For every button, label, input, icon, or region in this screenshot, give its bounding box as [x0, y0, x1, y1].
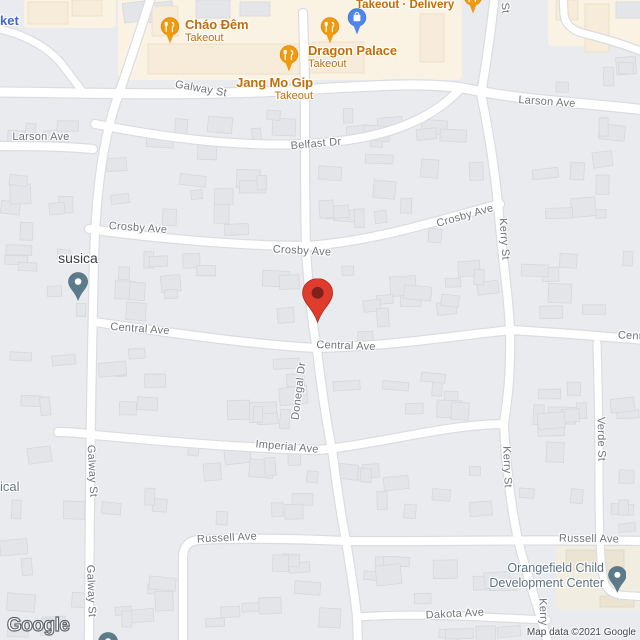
building: [273, 358, 300, 369]
building: [8, 130, 26, 142]
commercial-building: [28, 2, 68, 24]
place-pin-icon: [98, 632, 118, 640]
building: [279, 409, 290, 429]
building: [259, 597, 282, 614]
building: [27, 446, 52, 464]
building: [319, 608, 341, 628]
building: [354, 209, 364, 228]
building: [111, 193, 130, 204]
place-pin-icon: [68, 272, 88, 301]
susica-marker[interactable]: [68, 272, 88, 306]
building: [122, 611, 132, 627]
building: [610, 397, 635, 413]
building: [469, 501, 492, 517]
building: [0, 539, 28, 556]
building: [57, 121, 78, 132]
building: [106, 157, 127, 171]
building: [618, 500, 628, 515]
road-casing: [0, 28, 82, 91]
commercial-building: [585, 4, 609, 52]
building: [285, 504, 304, 519]
building: [539, 389, 561, 399]
building: [374, 210, 387, 223]
building: [376, 308, 389, 327]
building: [119, 402, 136, 415]
chao-dem-marker[interactable]: [160, 17, 180, 50]
building: [582, 305, 605, 314]
map-canvas[interactable]: Galway StLarson AveLarson AveBelfast DrC…: [0, 0, 640, 640]
building: [266, 110, 280, 121]
building: [623, 251, 634, 266]
dragon-palace-label[interactable]: Dragon PalaceTakeout: [308, 44, 397, 70]
building: [358, 331, 373, 341]
building: [118, 267, 129, 280]
building: [145, 374, 166, 388]
building: [469, 162, 483, 181]
building: [373, 180, 397, 199]
orangefield-center-label[interactable]: Orangefield ChildDevelopment Center: [489, 561, 604, 590]
takeout-delivery-label[interactable]: Takeout · Delivery: [356, 0, 454, 11]
restaurant-partial-top-marker[interactable]: [463, 0, 483, 19]
building: [6, 245, 32, 256]
building: [272, 118, 296, 136]
road: [0, 146, 93, 149]
building: [595, 209, 606, 218]
place-pin-icon: [608, 566, 627, 593]
building: [21, 558, 33, 576]
building: [619, 523, 636, 533]
building: [440, 129, 467, 142]
building: [257, 175, 267, 189]
building: [137, 397, 158, 411]
red-destination-pin-icon: [302, 278, 333, 324]
building: [377, 491, 387, 509]
building: [592, 151, 613, 168]
building: [216, 511, 228, 525]
building: [292, 494, 313, 506]
building: [545, 208, 572, 219]
building: [476, 626, 496, 640]
building: [619, 470, 634, 484]
building: [342, 266, 354, 276]
building: [540, 306, 563, 319]
place-partial-bottom-marker[interactable]: [98, 632, 118, 640]
building: [129, 282, 146, 301]
building: [306, 471, 318, 483]
building: [343, 109, 352, 123]
chao-dem-label[interactable]: Cháo ĐêmTakeout: [185, 18, 249, 44]
building: [360, 468, 372, 482]
building: [6, 593, 35, 613]
building: [10, 352, 32, 361]
building: [145, 488, 155, 505]
commercial-building: [420, 14, 444, 62]
building: [162, 209, 176, 226]
building: [497, 625, 521, 638]
building: [49, 202, 65, 215]
restaurant-pin-icon: [279, 45, 299, 73]
building: [383, 475, 409, 490]
google-logo[interactable]: Google: [7, 615, 69, 637]
building: [155, 591, 174, 611]
restaurant-pin-icon: [463, 0, 483, 14]
building: [616, 2, 640, 18]
building: [333, 380, 360, 391]
building: [273, 555, 289, 572]
building: [101, 502, 121, 515]
map-data-attribution: Map data ©2021 Google: [527, 627, 636, 638]
building: [445, 629, 473, 639]
building: [191, 190, 203, 200]
building: [596, 175, 609, 194]
building: [405, 403, 423, 414]
building: [604, 67, 614, 86]
building: [469, 466, 480, 475]
medical-partial-label[interactable]: ical: [0, 479, 20, 494]
susica-label[interactable]: susica: [58, 250, 98, 266]
restaurant-pin-icon: [160, 17, 180, 45]
building: [294, 581, 321, 596]
building: [215, 189, 233, 205]
building: [416, 128, 437, 141]
building: [599, 118, 608, 136]
market-partial-label[interactable]: ket: [0, 13, 19, 28]
building: [10, 184, 31, 204]
building: [433, 560, 457, 579]
building: [221, 606, 240, 617]
building: [421, 372, 446, 383]
building: [271, 503, 283, 517]
building: [451, 402, 470, 420]
jang-mo-gip-marker[interactable]: [279, 45, 299, 78]
building: [382, 381, 409, 392]
building: [149, 256, 168, 267]
building: [240, 2, 270, 16]
building: [403, 285, 431, 301]
building: [18, 262, 37, 271]
building: [25, 123, 36, 134]
building: [164, 289, 177, 298]
building: [207, 116, 233, 134]
building: [619, 62, 634, 74]
building: [264, 457, 276, 476]
building: [214, 204, 229, 223]
commercial-building: [72, 0, 102, 16]
building: [196, 0, 230, 18]
building: [420, 159, 439, 178]
building: [571, 197, 597, 218]
building: [126, 302, 147, 321]
building: [11, 500, 21, 519]
orangefield-center-marker[interactable]: [608, 566, 627, 598]
building: [9, 174, 28, 186]
restaurant-pin-icon: [320, 17, 340, 45]
building: [52, 354, 76, 366]
building: [63, 501, 85, 519]
building: [39, 397, 51, 416]
building: [197, 265, 216, 275]
building: [175, 119, 188, 135]
building: [20, 222, 33, 240]
building: [149, 576, 177, 591]
building: [432, 489, 451, 502]
building: [537, 412, 565, 430]
building: [227, 400, 250, 420]
building: [414, 593, 431, 604]
building: [128, 348, 145, 359]
building: [441, 294, 460, 307]
building: [570, 489, 583, 504]
building: [375, 564, 402, 586]
building: [72, 592, 86, 607]
building: [319, 200, 334, 218]
building: [203, 463, 222, 481]
building: [519, 488, 534, 498]
building: [521, 264, 548, 277]
destination-marker[interactable]: [302, 278, 333, 329]
building: [567, 382, 580, 395]
building: [286, 373, 305, 386]
building: [570, 162, 585, 180]
building: [242, 602, 261, 612]
building: [179, 173, 206, 187]
building: [47, 286, 62, 297]
building: [253, 406, 263, 422]
building: [532, 167, 559, 180]
shopping-place-marker[interactable]: [347, 8, 367, 41]
building: [546, 442, 565, 463]
building: [277, 307, 295, 323]
building: [445, 278, 461, 287]
building: [206, 618, 225, 627]
building: [474, 269, 485, 285]
building: [339, 463, 359, 480]
building: [400, 198, 411, 213]
building: [556, 82, 568, 92]
building: [404, 504, 417, 519]
building: [279, 386, 308, 406]
building: [548, 284, 572, 304]
building: [318, 166, 342, 181]
building: [224, 223, 248, 235]
shopping-bag-pin-icon: [347, 8, 367, 36]
building: [365, 154, 393, 164]
building: [559, 253, 577, 268]
building: [428, 228, 442, 243]
jang-mo-gip-label[interactable]: Jang Mo GipTakeout: [236, 76, 313, 102]
building: [279, 274, 299, 289]
building: [98, 361, 127, 377]
